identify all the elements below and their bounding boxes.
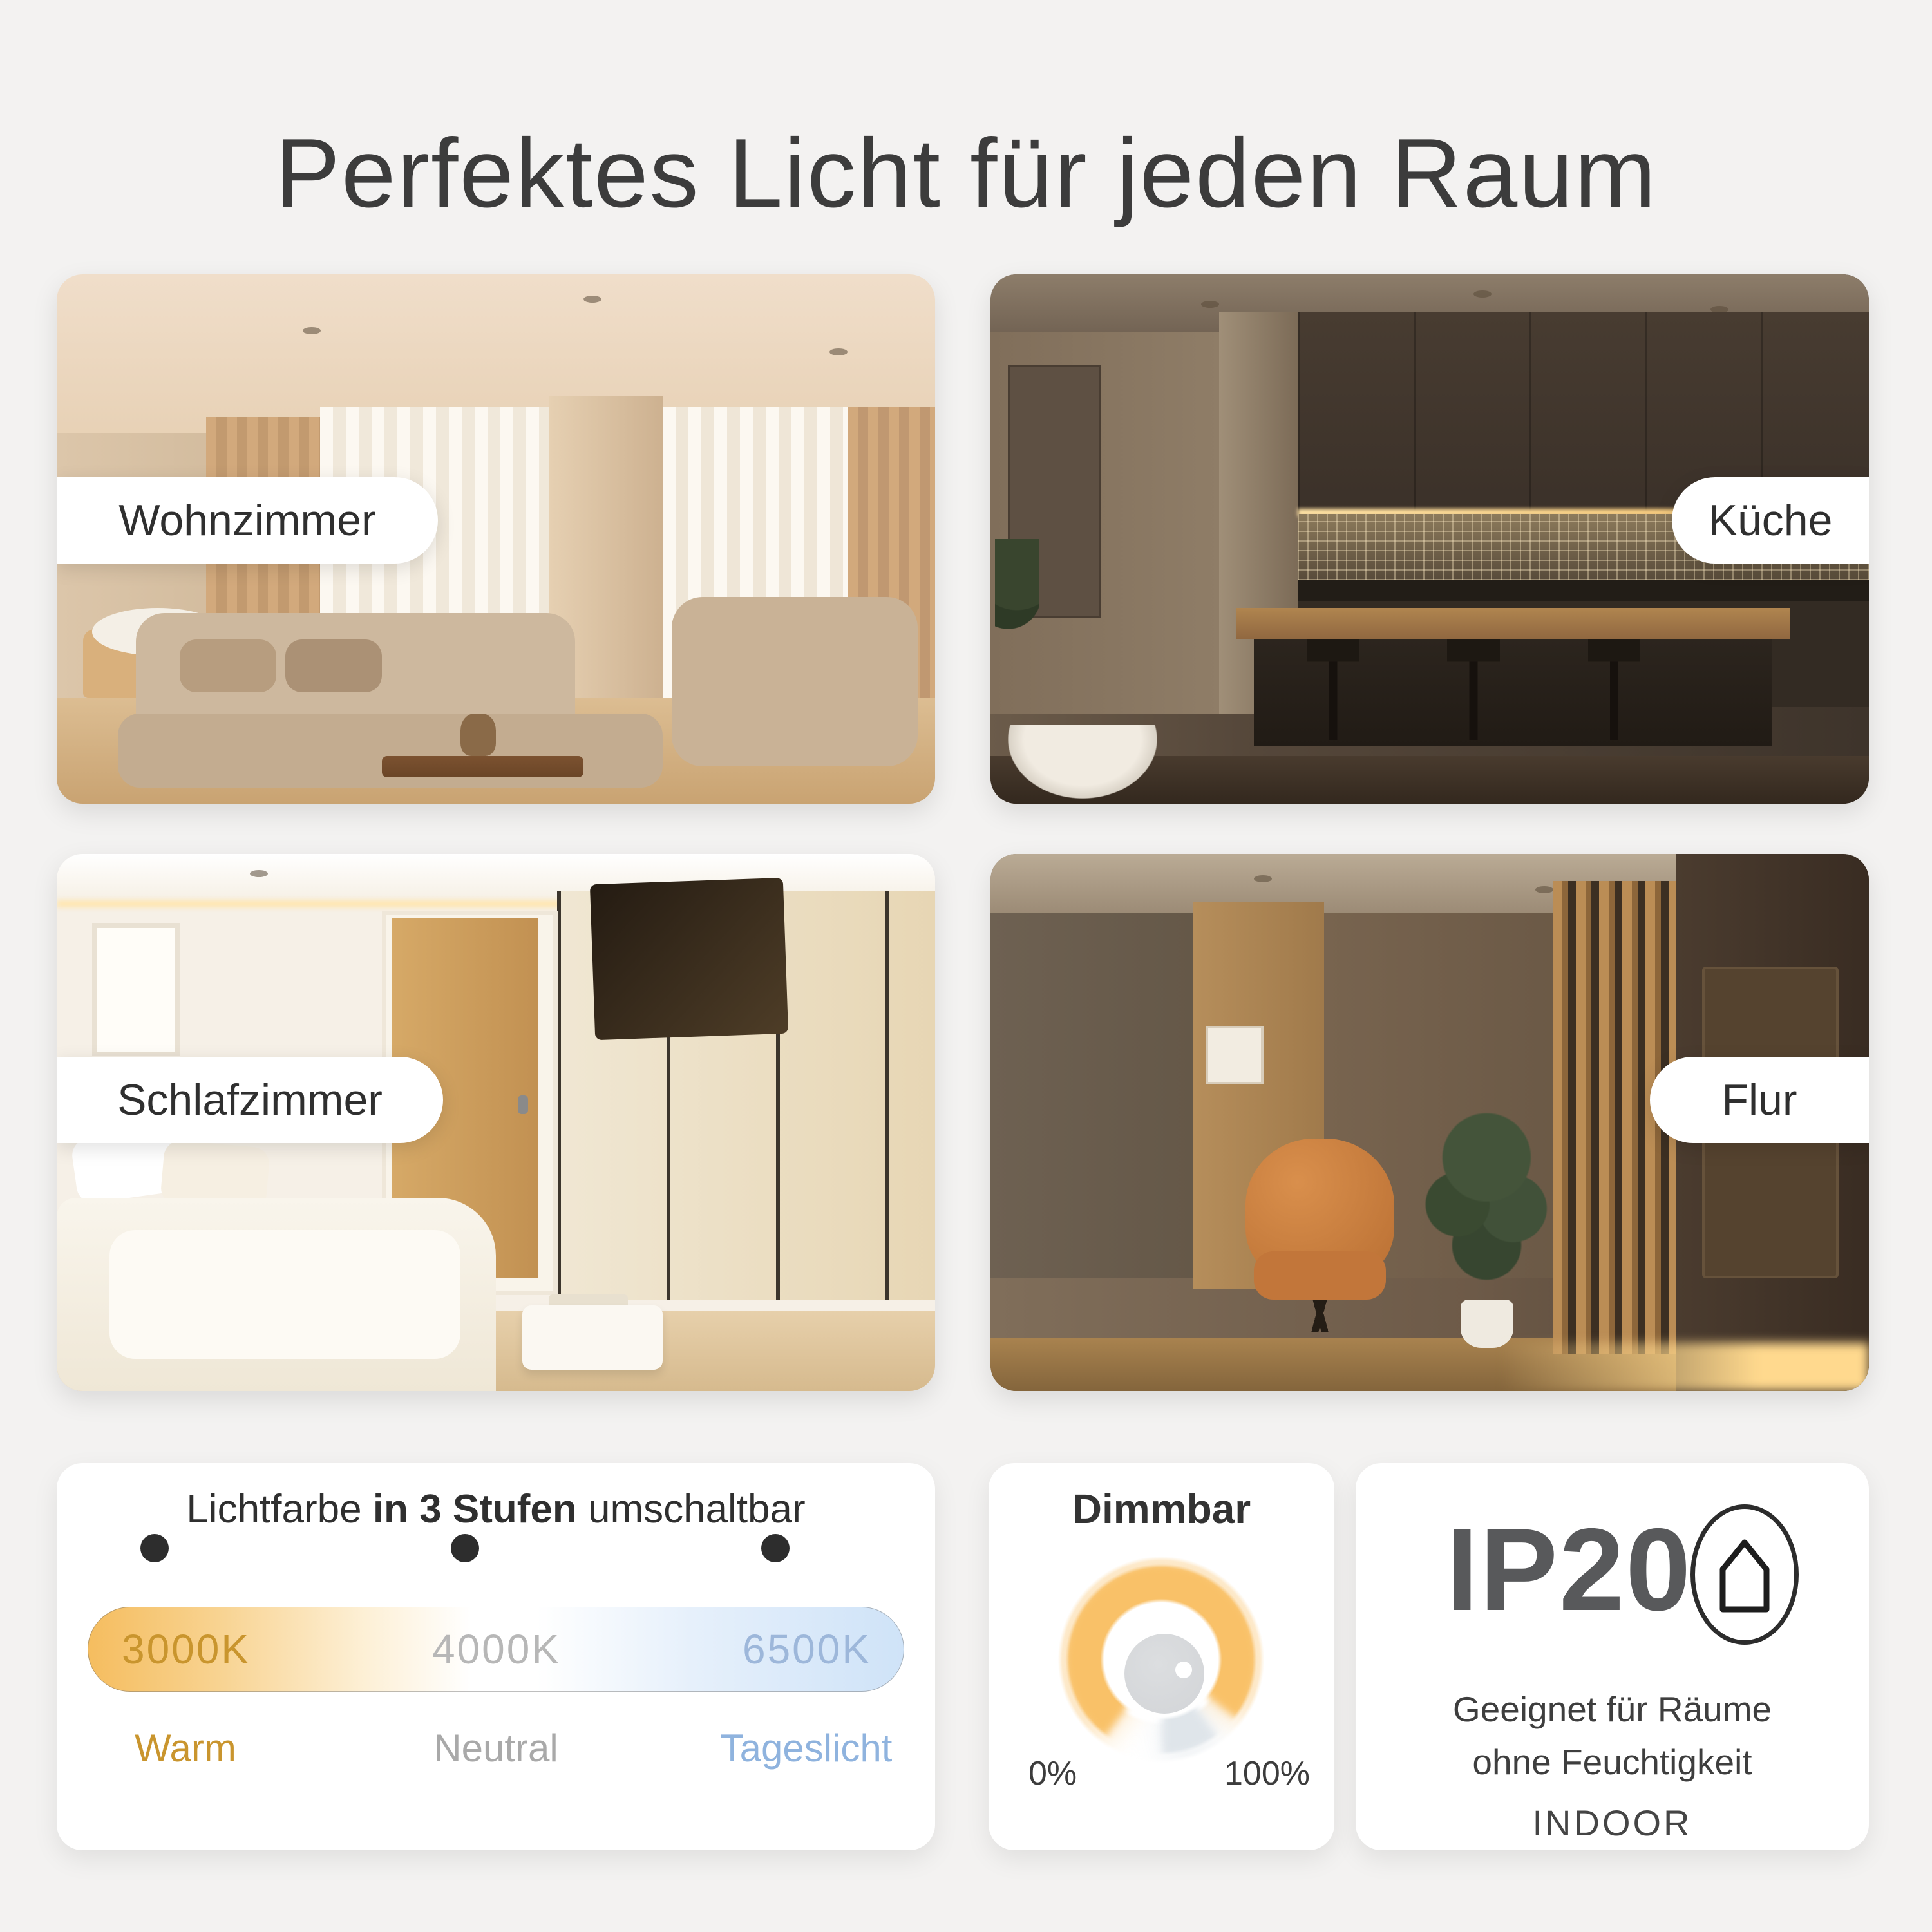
dimmer-max-label: 100% — [1224, 1754, 1310, 1793]
door-handle — [518, 1095, 528, 1113]
ceiling-spotlight — [250, 870, 268, 877]
ottoman-bench — [522, 1305, 663, 1370]
kelvin-value-6500k: 6500K — [743, 1625, 871, 1673]
light-color-heading: Lichtfarbe in 3 Stufen umschaltbar — [57, 1486, 935, 1532]
wardrobe — [990, 913, 1193, 1278]
ceiling-spotlight — [583, 296, 601, 303]
room-label-schlafzimmer: Schlafzimmer — [57, 1057, 443, 1143]
kelvin-label-tageslicht: Tageslicht — [721, 1726, 893, 1770]
dial-knob — [1124, 1634, 1204, 1714]
wall-tv — [590, 878, 788, 1040]
photo-wohnzimmer: Wohnzimmer — [57, 274, 935, 804]
ip-description-line2: ohne Feuchtigkeit — [1356, 1741, 1869, 1783]
picture-frame — [1206, 1026, 1264, 1084]
bar-stool — [1307, 639, 1359, 740]
room-label-text: Schlafzimmer — [117, 1075, 383, 1125]
slider-dot-6500k — [761, 1534, 790, 1562]
plant — [1421, 1106, 1553, 1311]
room-label-text: Flur — [1721, 1075, 1797, 1125]
light-color-card: Lichtfarbe in 3 Stufen umschaltbar 3000K… — [57, 1463, 935, 1850]
slider-dot-3000k — [140, 1534, 169, 1562]
indoor-tag: INDOOR — [1356, 1802, 1869, 1844]
plant — [995, 539, 1039, 634]
kelvin-value-3000k: 3000K — [122, 1625, 251, 1673]
armchair-seat — [1254, 1251, 1386, 1300]
dimmer-dial-icon — [1065, 1563, 1258, 1756]
heading-bold: in 3 Stufen — [362, 1487, 577, 1531]
cushion — [285, 639, 382, 692]
photo-schlafzimmer: Schlafzimmer — [57, 854, 935, 1391]
dimmable-card: Dimmbar 0% 100% — [989, 1463, 1334, 1850]
kelvin-value-4000k: 4000K — [432, 1625, 561, 1673]
dial-knob-indicator — [1175, 1662, 1192, 1678]
room-label-flur: Flur — [1650, 1057, 1869, 1143]
bar-stool — [1447, 639, 1500, 740]
dimmable-heading: Dimmbar — [989, 1485, 1334, 1533]
bar-stool — [1588, 639, 1641, 740]
kelvin-label-neutral: Neutral — [433, 1726, 558, 1770]
heading-prefix: Lichtfarbe — [186, 1487, 361, 1531]
ip-description-line1: Geeignet für Räume — [1356, 1689, 1869, 1730]
slider-dot-4000k — [451, 1534, 479, 1562]
room-label-kueche: Küche — [1672, 477, 1869, 563]
kelvin-gradient-bar: 3000K 4000K 6500K — [88, 1607, 904, 1692]
cushion — [180, 639, 276, 692]
duvet — [109, 1230, 461, 1359]
armchair-legs — [1280, 1294, 1359, 1332]
ip-rating-card: IP20 Geeignet für Räume ohne Feuchtigkei… — [1356, 1463, 1869, 1850]
kelvin-label-warm: Warm — [135, 1726, 236, 1770]
vase — [460, 714, 496, 756]
room-label-text: Küche — [1709, 495, 1833, 545]
led-cove-light — [57, 900, 566, 908]
countertop — [1298, 580, 1869, 601]
house-icon — [1690, 1504, 1799, 1645]
room-label-text: Wohnzimmer — [118, 495, 375, 545]
photo-kueche: Küche — [990, 274, 1869, 804]
photo-flur: Flur — [990, 854, 1869, 1391]
ip-rating-text: IP20 — [1446, 1502, 1692, 1637]
room-label-wohnzimmer: Wohnzimmer — [57, 477, 438, 563]
dimmer-min-label: 0% — [1028, 1754, 1077, 1793]
round-table — [1008, 724, 1157, 799]
coffee-table — [382, 756, 584, 777]
house-icon-glyph — [1714, 1533, 1776, 1616]
page-title: Perfektes Licht für jeden Raum — [0, 112, 1932, 234]
sofa-chaise — [672, 597, 918, 766]
ceiling-spotlight — [1473, 290, 1492, 298]
window — [92, 923, 180, 1056]
island-top — [1236, 608, 1790, 639]
floor-light-glow — [1500, 1343, 1869, 1391]
heading-suffix: umschaltbar — [577, 1487, 806, 1531]
ceiling-spotlight — [1535, 886, 1553, 893]
plant-pot — [1461, 1300, 1513, 1348]
